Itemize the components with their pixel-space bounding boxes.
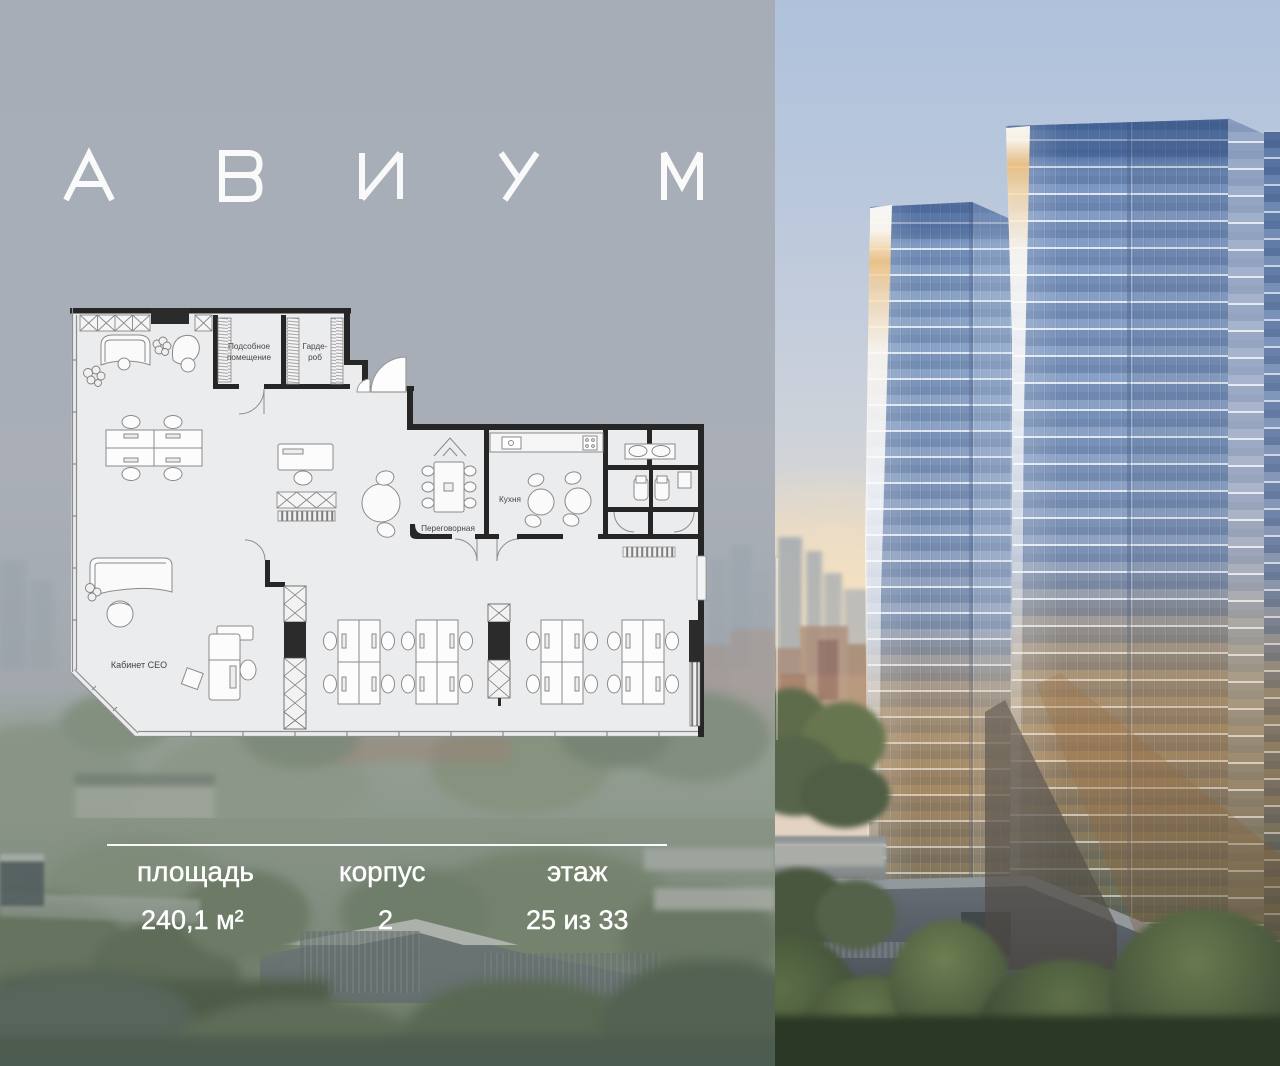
svg-text:Гарде-: Гарде- bbox=[303, 342, 328, 351]
svg-text:Подсобное: Подсобное bbox=[228, 342, 271, 351]
svg-text:Кабинет CEO: Кабинет CEO bbox=[111, 660, 167, 670]
svg-text:Кухня: Кухня bbox=[499, 495, 521, 504]
svg-text:роб: роб bbox=[308, 353, 322, 362]
svg-text:Переговорная: Переговорная bbox=[421, 524, 475, 533]
svg-text:помещение: помещение bbox=[227, 353, 271, 362]
